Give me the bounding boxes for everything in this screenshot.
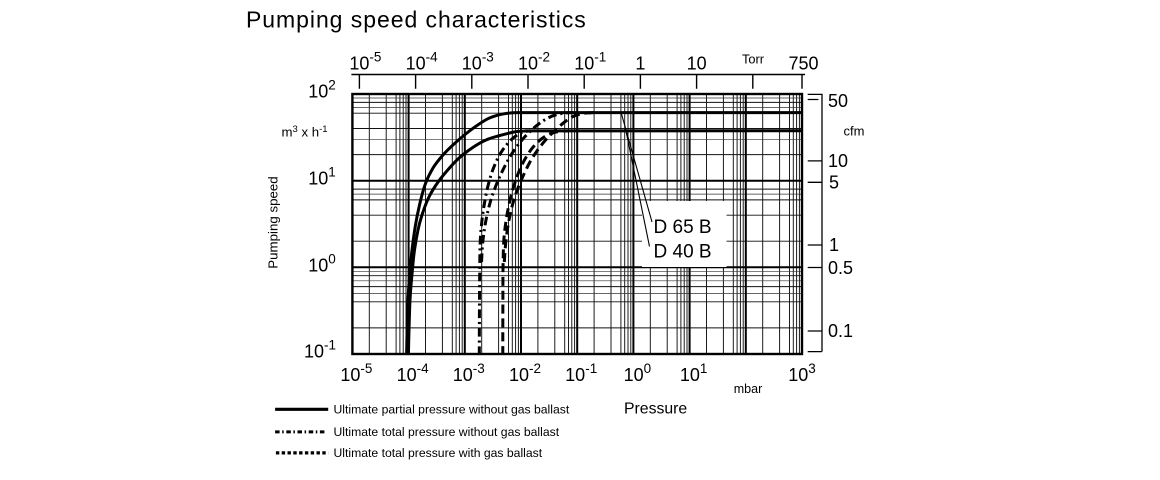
svg-text:D 40 B: D 40 B [654,242,712,263]
svg-text:Torr: Torr [742,52,765,67]
svg-text:0.1: 0.1 [828,321,853,341]
svg-text:0.5: 0.5 [828,258,853,278]
svg-text:10-3: 10-3 [453,361,485,385]
svg-text:Ultimate partial pressure with: Ultimate partial pressure without gas ba… [334,403,570,417]
svg-text:m3 x h-1: m3 x h-1 [282,124,328,140]
svg-text:Pumping speed characteristics: Pumping speed characteristics [246,7,587,33]
svg-text:10-4: 10-4 [397,361,430,385]
svg-text:Pumping speed: Pumping speed [266,176,281,268]
svg-text:10-2: 10-2 [509,361,541,385]
svg-text:10-5: 10-5 [349,49,381,73]
svg-text:1: 1 [829,235,839,255]
svg-text:10-1: 10-1 [574,49,606,73]
svg-text:mbar: mbar [734,382,762,396]
svg-text:10-2: 10-2 [518,49,550,73]
svg-text:Ultimate total pressure with g: Ultimate total pressure with gas ballast [334,446,543,460]
svg-text:10: 10 [828,151,848,171]
svg-text:D 65 B: D 65 B [654,217,712,238]
svg-text:10: 10 [687,53,707,73]
svg-text:1: 1 [635,53,645,73]
svg-text:750: 750 [788,53,818,73]
svg-text:101: 101 [308,165,336,189]
svg-text:10-4: 10-4 [406,49,439,73]
svg-text:50: 50 [828,91,848,111]
svg-text:102: 102 [308,78,336,102]
svg-text:101: 101 [680,361,708,385]
svg-text:Ultimate total pressure withou: Ultimate total pressure without gas ball… [334,425,560,439]
svg-text:100: 100 [624,361,652,385]
svg-text:103: 103 [788,361,816,385]
svg-text:5: 5 [829,173,839,193]
svg-text:10-1: 10-1 [565,361,597,385]
svg-text:10-1: 10-1 [304,338,336,362]
svg-text:10-5: 10-5 [340,361,372,385]
svg-text:10-3: 10-3 [462,49,494,73]
svg-text:100: 100 [308,252,336,276]
svg-text:Pressure: Pressure [624,401,687,418]
svg-text:cfm: cfm [844,124,865,139]
